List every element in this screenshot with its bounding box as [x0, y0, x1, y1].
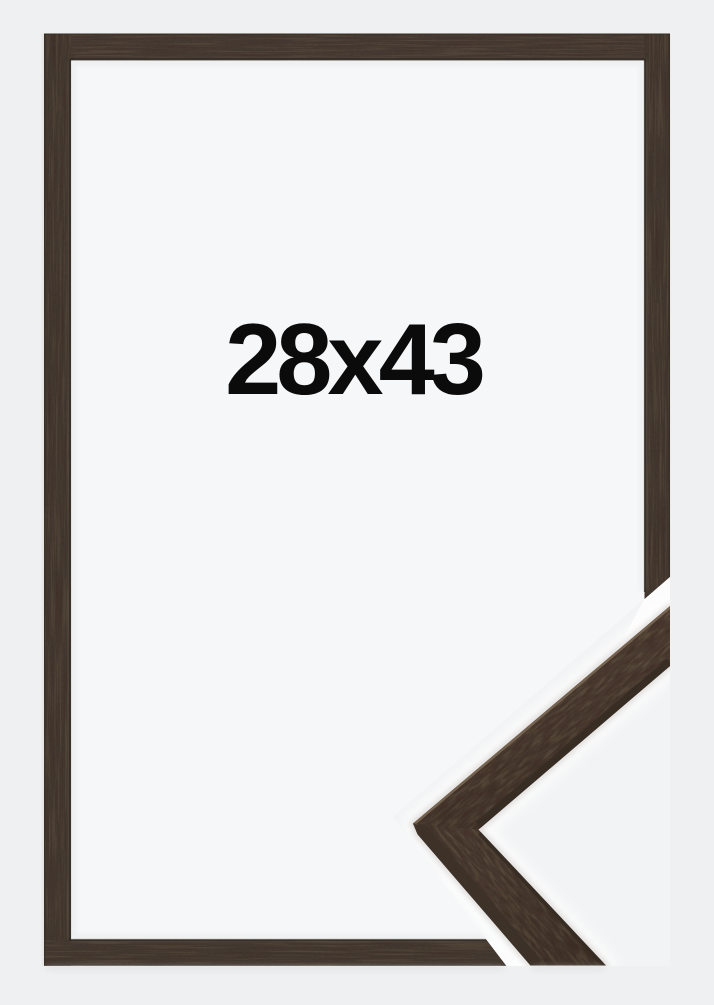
- svg-text:28x43: 28x43: [225, 304, 483, 416]
